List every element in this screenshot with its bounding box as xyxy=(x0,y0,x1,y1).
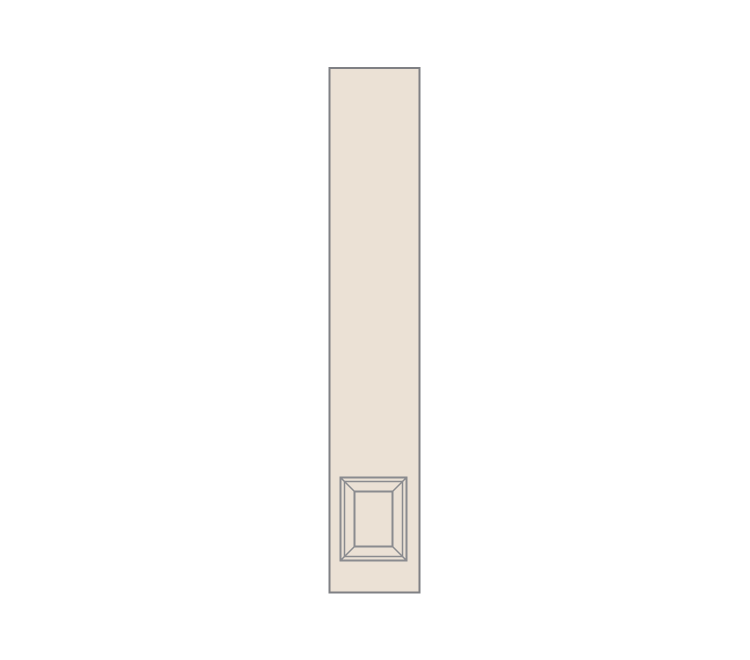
canvas xyxy=(0,0,750,660)
cabinet-pilaster-illustration[interactable] xyxy=(0,0,750,660)
